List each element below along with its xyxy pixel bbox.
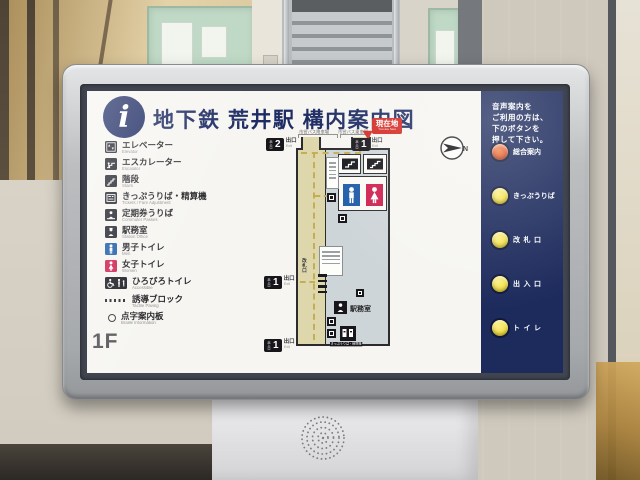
ticket-machines-map-icon xyxy=(340,326,356,341)
legend-item-commuter-pass: 定期券うりばCommuter Passes xyxy=(105,209,173,225)
compass-icon: N xyxy=(438,133,468,163)
ticket-machines-label: きっぷうりば・精算機 xyxy=(330,342,362,346)
women-toilet-map-icon xyxy=(366,184,383,206)
elevator-map-icon xyxy=(327,329,336,338)
men-toilet-icon xyxy=(105,243,117,255)
audio-button-entrance[interactable] xyxy=(492,276,508,292)
map-info-box-top xyxy=(326,157,339,189)
tactile-path xyxy=(300,281,315,283)
fare-machine-map-icon xyxy=(356,289,364,297)
poster xyxy=(201,26,227,58)
braille-icon xyxy=(108,314,116,322)
audio-button-toilet[interactable] xyxy=(492,320,508,336)
poster xyxy=(161,22,193,66)
elevator-map-icon xyxy=(327,317,336,326)
floor-label: 1F xyxy=(92,330,119,354)
station-office-map-icon xyxy=(334,301,347,314)
audio-button-information[interactable] xyxy=(492,144,508,160)
legend-item-braille: 点字案内板Braille Information xyxy=(105,312,169,328)
tickets-icon xyxy=(105,192,117,204)
dark-floor xyxy=(0,444,215,480)
map-room-toilets xyxy=(338,176,387,211)
commuter-pass-icon xyxy=(105,209,117,221)
legend-item-elevator: エレベーターElevator xyxy=(105,141,173,157)
accessible-map-icon xyxy=(338,214,347,223)
svg-text:N: N xyxy=(463,146,468,153)
audio-row-entrance: 出入口 xyxy=(492,275,558,292)
exit-marker-2: 出入口2 出口Exit xyxy=(266,138,297,151)
tactile-paving-icon xyxy=(105,299,127,302)
brass-reflection xyxy=(596,362,640,480)
legend-item-tactile-paving: 誘導ブロックTactile Paving xyxy=(105,295,183,311)
information-icon: i xyxy=(103,96,145,138)
map-info-box-mid xyxy=(319,246,343,276)
ticket-gate xyxy=(318,280,327,283)
men-toilet-map-icon xyxy=(343,184,360,206)
ticket-gate xyxy=(318,274,327,277)
elevator-map-icon xyxy=(327,193,336,202)
escalator-icon xyxy=(105,158,117,170)
legend-item-stairs: 階段Stairs xyxy=(105,175,139,191)
gate-label: 改札口 xyxy=(300,258,307,272)
station-office-label: 駅務室 xyxy=(350,304,371,314)
accessible-toilet-icon xyxy=(105,277,127,289)
audio-row-gates: 改札口 xyxy=(492,231,558,248)
map-room-escalator xyxy=(338,154,361,174)
audio-row-tickets: きっぷうりば xyxy=(492,187,558,204)
stairs-map-icon xyxy=(365,156,385,173)
legend-item-women-toilet: 女子トイレWomen xyxy=(105,260,165,276)
stair-landing-dark xyxy=(292,0,392,12)
elevator-icon xyxy=(105,141,117,153)
map-room-stairs xyxy=(363,154,387,174)
escalator-map-icon xyxy=(340,156,360,173)
legend-item-station-office: 駅務室Station Office xyxy=(105,226,158,242)
tactile-path xyxy=(313,152,315,340)
audio-panel-instructions: 音声案内を ご利用の方は、 下のボタンを 押して下さい。 xyxy=(492,101,548,145)
stairs-icon xyxy=(105,175,117,187)
legend-item-men-toilet: 男子トイレMen xyxy=(105,243,165,259)
speaker-grille xyxy=(300,415,346,461)
station-kiosk-photo: i 地下鉄 荒井駅 構内案内図 1F エレベーターElevator エスカレータ… xyxy=(0,0,640,480)
audio-row-information: 総合案内 xyxy=(492,143,558,160)
legend-item-tickets: きっぷうりば・精算機Tickets / Fare Adjustment xyxy=(105,192,207,208)
ticket-gate xyxy=(318,291,327,294)
exit-marker-mid: 出入口1 出口Exit xyxy=(264,276,295,289)
exit-marker-bottom: 出入口1 出口Exit xyxy=(264,339,295,352)
ticket-gate xyxy=(318,285,327,288)
audio-button-gates[interactable] xyxy=(492,232,508,248)
legend-item-accessible-toilet: ひろびろトイレAccessible xyxy=(105,277,192,293)
women-toilet-icon xyxy=(105,260,117,272)
you-are-here-tag: 現在地 You are here xyxy=(372,118,402,134)
exit-marker-1: 出入口1 出口Exit xyxy=(352,138,383,151)
legend-item-escalator: エスカレーターEscalator xyxy=(105,158,182,174)
station-office-icon xyxy=(105,226,117,238)
audio-button-tickets[interactable] xyxy=(492,188,508,204)
map-entrance-stub-west xyxy=(301,137,321,150)
audio-row-toilet: トイレ xyxy=(492,319,558,336)
